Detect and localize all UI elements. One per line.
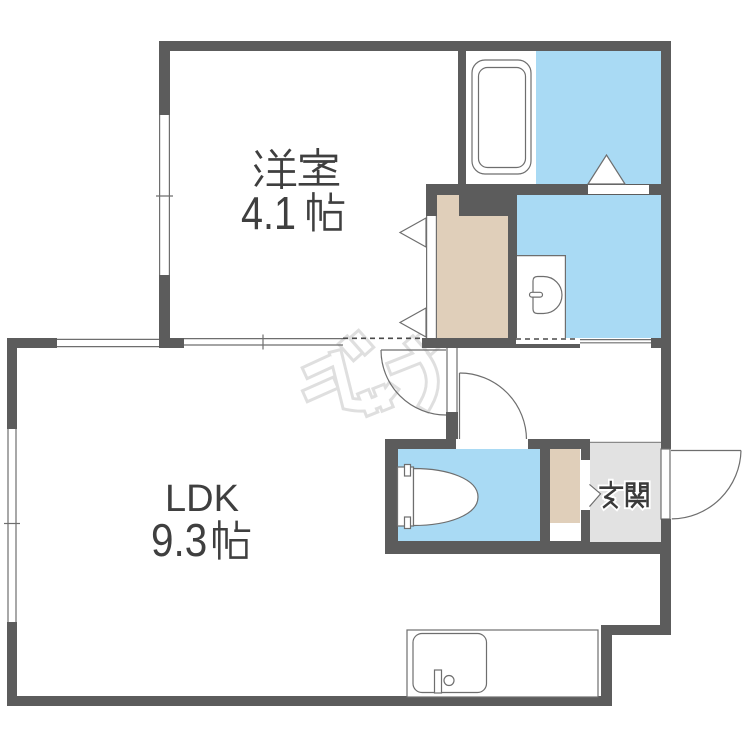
- svg-text:9.3: 9.3: [151, 516, 207, 567]
- svg-text:4.1: 4.1: [241, 188, 296, 239]
- svg-text:LDK: LDK: [165, 478, 239, 520]
